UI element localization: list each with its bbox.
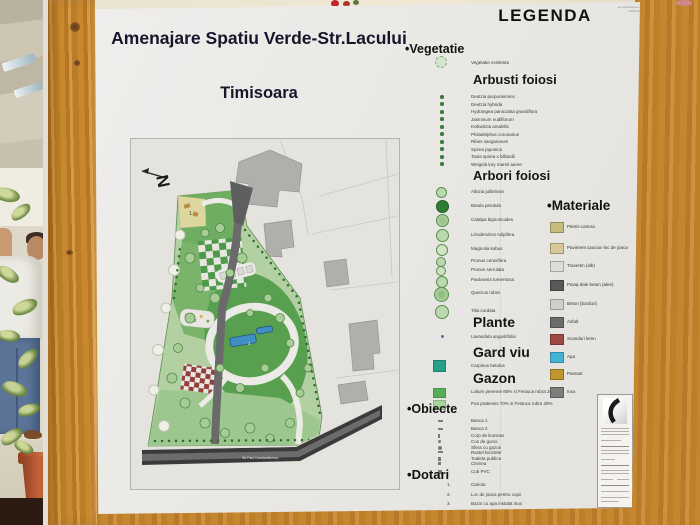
pink-flower (676, 0, 692, 6)
legend-item: Taula spirea x billiardii (471, 154, 515, 159)
legend-item: Bazin cu apa instalat inox (471, 501, 522, 506)
person-shoe (24, 430, 42, 439)
materiale-label: Materiale (552, 198, 611, 213)
legend-item: Paviment cauciuc-loc de joaca (567, 245, 628, 250)
university-logo (603, 398, 627, 424)
legend-item: Scanduri lemn (567, 336, 596, 341)
titleblock-text-line (601, 491, 629, 492)
street-label: Str Paul Constantinescu (242, 456, 278, 460)
dotari-number: 1. (447, 482, 451, 487)
material-swatch (550, 334, 564, 345)
material-swatch (550, 299, 564, 310)
legend-item: Pietris-cariera (567, 224, 595, 229)
site-plan-map: Str Paul Constantinescu N 1 2 3 (130, 138, 400, 490)
legend-section-obiecte: •Obiecte (407, 402, 457, 416)
logo-curve-icon (603, 398, 627, 424)
tree-symbol-icon (436, 244, 448, 256)
tree-symbol-icon (436, 266, 446, 276)
existing-vegetation-symbol-icon (435, 56, 447, 68)
material-swatch (550, 261, 564, 272)
wood-knot (70, 22, 80, 32)
titleblock-text-line (601, 434, 629, 435)
material-swatch (550, 352, 564, 363)
titleblock-text-line (601, 473, 629, 474)
legend-item: Magnolia kobus (471, 246, 503, 251)
legend-item: Pamant (567, 371, 583, 376)
map-marker-1: 1 (189, 211, 192, 217)
wood-knot (66, 250, 73, 255)
office-background (0, 0, 44, 525)
titleblock-text-line (601, 450, 629, 451)
object-symbol-icon (438, 440, 441, 443)
material-swatch (550, 369, 564, 380)
object-symbol-icon (438, 420, 443, 422)
titleblock-divider (601, 465, 629, 466)
legend-title: LEGENDA (455, 6, 635, 26)
legend-item: Quercus rubra (471, 290, 500, 295)
legend-item: Spirea japonica (471, 147, 502, 152)
legend-item: Cariota (471, 482, 486, 487)
arbori-heading: Arbori foiosi (473, 168, 550, 183)
material-swatch (550, 243, 564, 254)
legend-item: Philadelphus coronarius (471, 132, 519, 137)
titleblock-divider (601, 485, 629, 486)
vegetatie-label: Vegetatie (409, 42, 464, 56)
tree-symbol-icon (436, 229, 449, 242)
legend-item: Catalpa bignonioides (471, 217, 513, 222)
legend-item: Weigela lory mareil auree (471, 162, 522, 167)
legend-item: Cub PVC (471, 469, 490, 474)
legend-item: Loc de joaca pentru copii (471, 492, 521, 497)
shrub-symbol-icon (440, 102, 444, 106)
shrub-symbol-icon (440, 95, 444, 99)
legend-item: Rastel biciclete (471, 450, 501, 455)
material-swatch (550, 317, 564, 328)
legend-item: Tilia cordata (471, 308, 495, 313)
legend-item: Lavandula angustifolia (471, 334, 516, 339)
titleblock-text-line (601, 479, 613, 480)
legend-item: Jasminum nudiflorum (471, 117, 514, 122)
object-symbol-icon (438, 451, 443, 453)
legend-item: Vegetatie existenta (471, 60, 509, 65)
legend-item: Kolkwitzia amabilis (471, 124, 509, 129)
titleblock-text-line (601, 459, 615, 460)
legend-item: Hydrangea paniculata grandiflora (471, 109, 537, 114)
flower-leaf (353, 0, 359, 5)
photo-of-poster: { "poster": { "title": "Amenajare Spatiu… (0, 0, 700, 525)
object-symbol-icon (438, 446, 442, 450)
legend-section-dotari: •Dotari (407, 467, 449, 482)
landscape-plan-poster: Amenajare Spatiu Verde-Str.Lacului Timis… (95, 0, 640, 514)
object-symbol-icon (438, 428, 443, 430)
titleblock-divider (601, 446, 629, 447)
material-swatch (550, 280, 564, 291)
legend-item: Corp de iluminat (471, 433, 504, 438)
gazon-heading: Gazon (473, 370, 516, 386)
tree-symbol-icon (434, 287, 449, 302)
playground-area (178, 196, 206, 228)
legend-item: Betula pendula (471, 203, 501, 208)
legend-item: Poa pratensis 70% si Festuca rubra 30% (471, 401, 553, 406)
shrub-symbol-icon (440, 125, 444, 129)
legend-section-materiale: •Materiale (547, 198, 610, 213)
titleblock-text-line (617, 479, 629, 480)
legend-item: Banca 2 (471, 426, 488, 431)
hedge-swatch (433, 360, 446, 372)
plant-symbol-icon (441, 335, 444, 338)
poster-subtitle: Timisoara (105, 84, 413, 103)
tree-symbol-icon (436, 187, 447, 198)
titleblock-text-line (601, 501, 619, 502)
legend-item: Pavaj-dale beton (alee) (567, 282, 614, 287)
legend-item: Carpinus betulus (471, 363, 505, 368)
legend-item: Prunus cerasifera (471, 258, 506, 263)
object-symbol-icon (438, 462, 441, 465)
legend-item: Deutzia purpurascens (471, 94, 515, 99)
plante-heading: Plante (473, 314, 515, 330)
legend-item: Cismea (471, 461, 486, 466)
material-swatch (550, 222, 564, 233)
wood-knot (74, 60, 80, 66)
legend-item: Paulownia tomentosa (471, 277, 514, 282)
legend-item: Cos de gunoi (471, 439, 498, 444)
legend-item: Inox (567, 389, 576, 394)
shrub-symbol-icon (440, 162, 444, 166)
legend-item: Prunus serrulata (471, 267, 504, 272)
shadow-under-pot (0, 498, 46, 525)
shrub-symbol-icon (440, 147, 444, 151)
legend-item: Asfalt (567, 319, 578, 324)
arbusti-heading: Arbusti foiosi (473, 72, 557, 87)
object-symbol-icon (438, 457, 441, 461)
shrub-symbol-icon (440, 110, 444, 114)
titleblock-text-line (601, 470, 629, 471)
wooden-post (48, 0, 97, 525)
legend-item: Liriodendron tulipifera (471, 232, 514, 237)
lawn-swatch (433, 388, 446, 398)
material-swatch (550, 387, 564, 398)
tree-symbol-icon (435, 305, 449, 319)
kids-play-area (179, 308, 215, 328)
dotari-number: 2. (447, 492, 451, 497)
legend-item: Albizia julibrissin (471, 189, 504, 194)
titleblock-text-line (601, 453, 629, 454)
shrub-symbol-icon (440, 132, 444, 136)
legend-item: Beton (borduri) (567, 301, 597, 306)
titleblock-text-line (601, 440, 621, 441)
object-symbol-icon (438, 434, 440, 438)
gardviu-heading: Gard viu (473, 344, 530, 360)
legend-item: Apa (567, 354, 575, 359)
titleblock-text-line (601, 497, 629, 498)
shrub-symbol-icon (440, 117, 444, 121)
title-block (597, 394, 633, 508)
obiecte-label: Obiecte (411, 402, 457, 416)
poster-title: Amenajare Spatiu Verde-Str.Lacului (105, 28, 413, 49)
shrub-symbol-icon (440, 140, 444, 144)
dotari-label: Dotari (412, 467, 450, 482)
legend-item: Ribes sanguineum (471, 139, 508, 144)
titleblock-text-line (601, 428, 629, 429)
legend-item: Travertin (alb) (567, 263, 595, 268)
legend-item: Deutzia hybrida (471, 102, 502, 107)
tree-symbol-icon (436, 214, 449, 227)
dotari-number: 3. (447, 501, 451, 506)
legend-item: Lolium perenne 80% si Festuca rubra 20% (471, 389, 556, 394)
legend-item: Banca 1 (471, 418, 488, 423)
tree-symbol-icon (436, 200, 449, 213)
titleblock-text-line (601, 431, 629, 432)
shrub-symbol-icon (440, 155, 444, 159)
legend-section-vegetatie: •Vegetatie (405, 42, 464, 56)
